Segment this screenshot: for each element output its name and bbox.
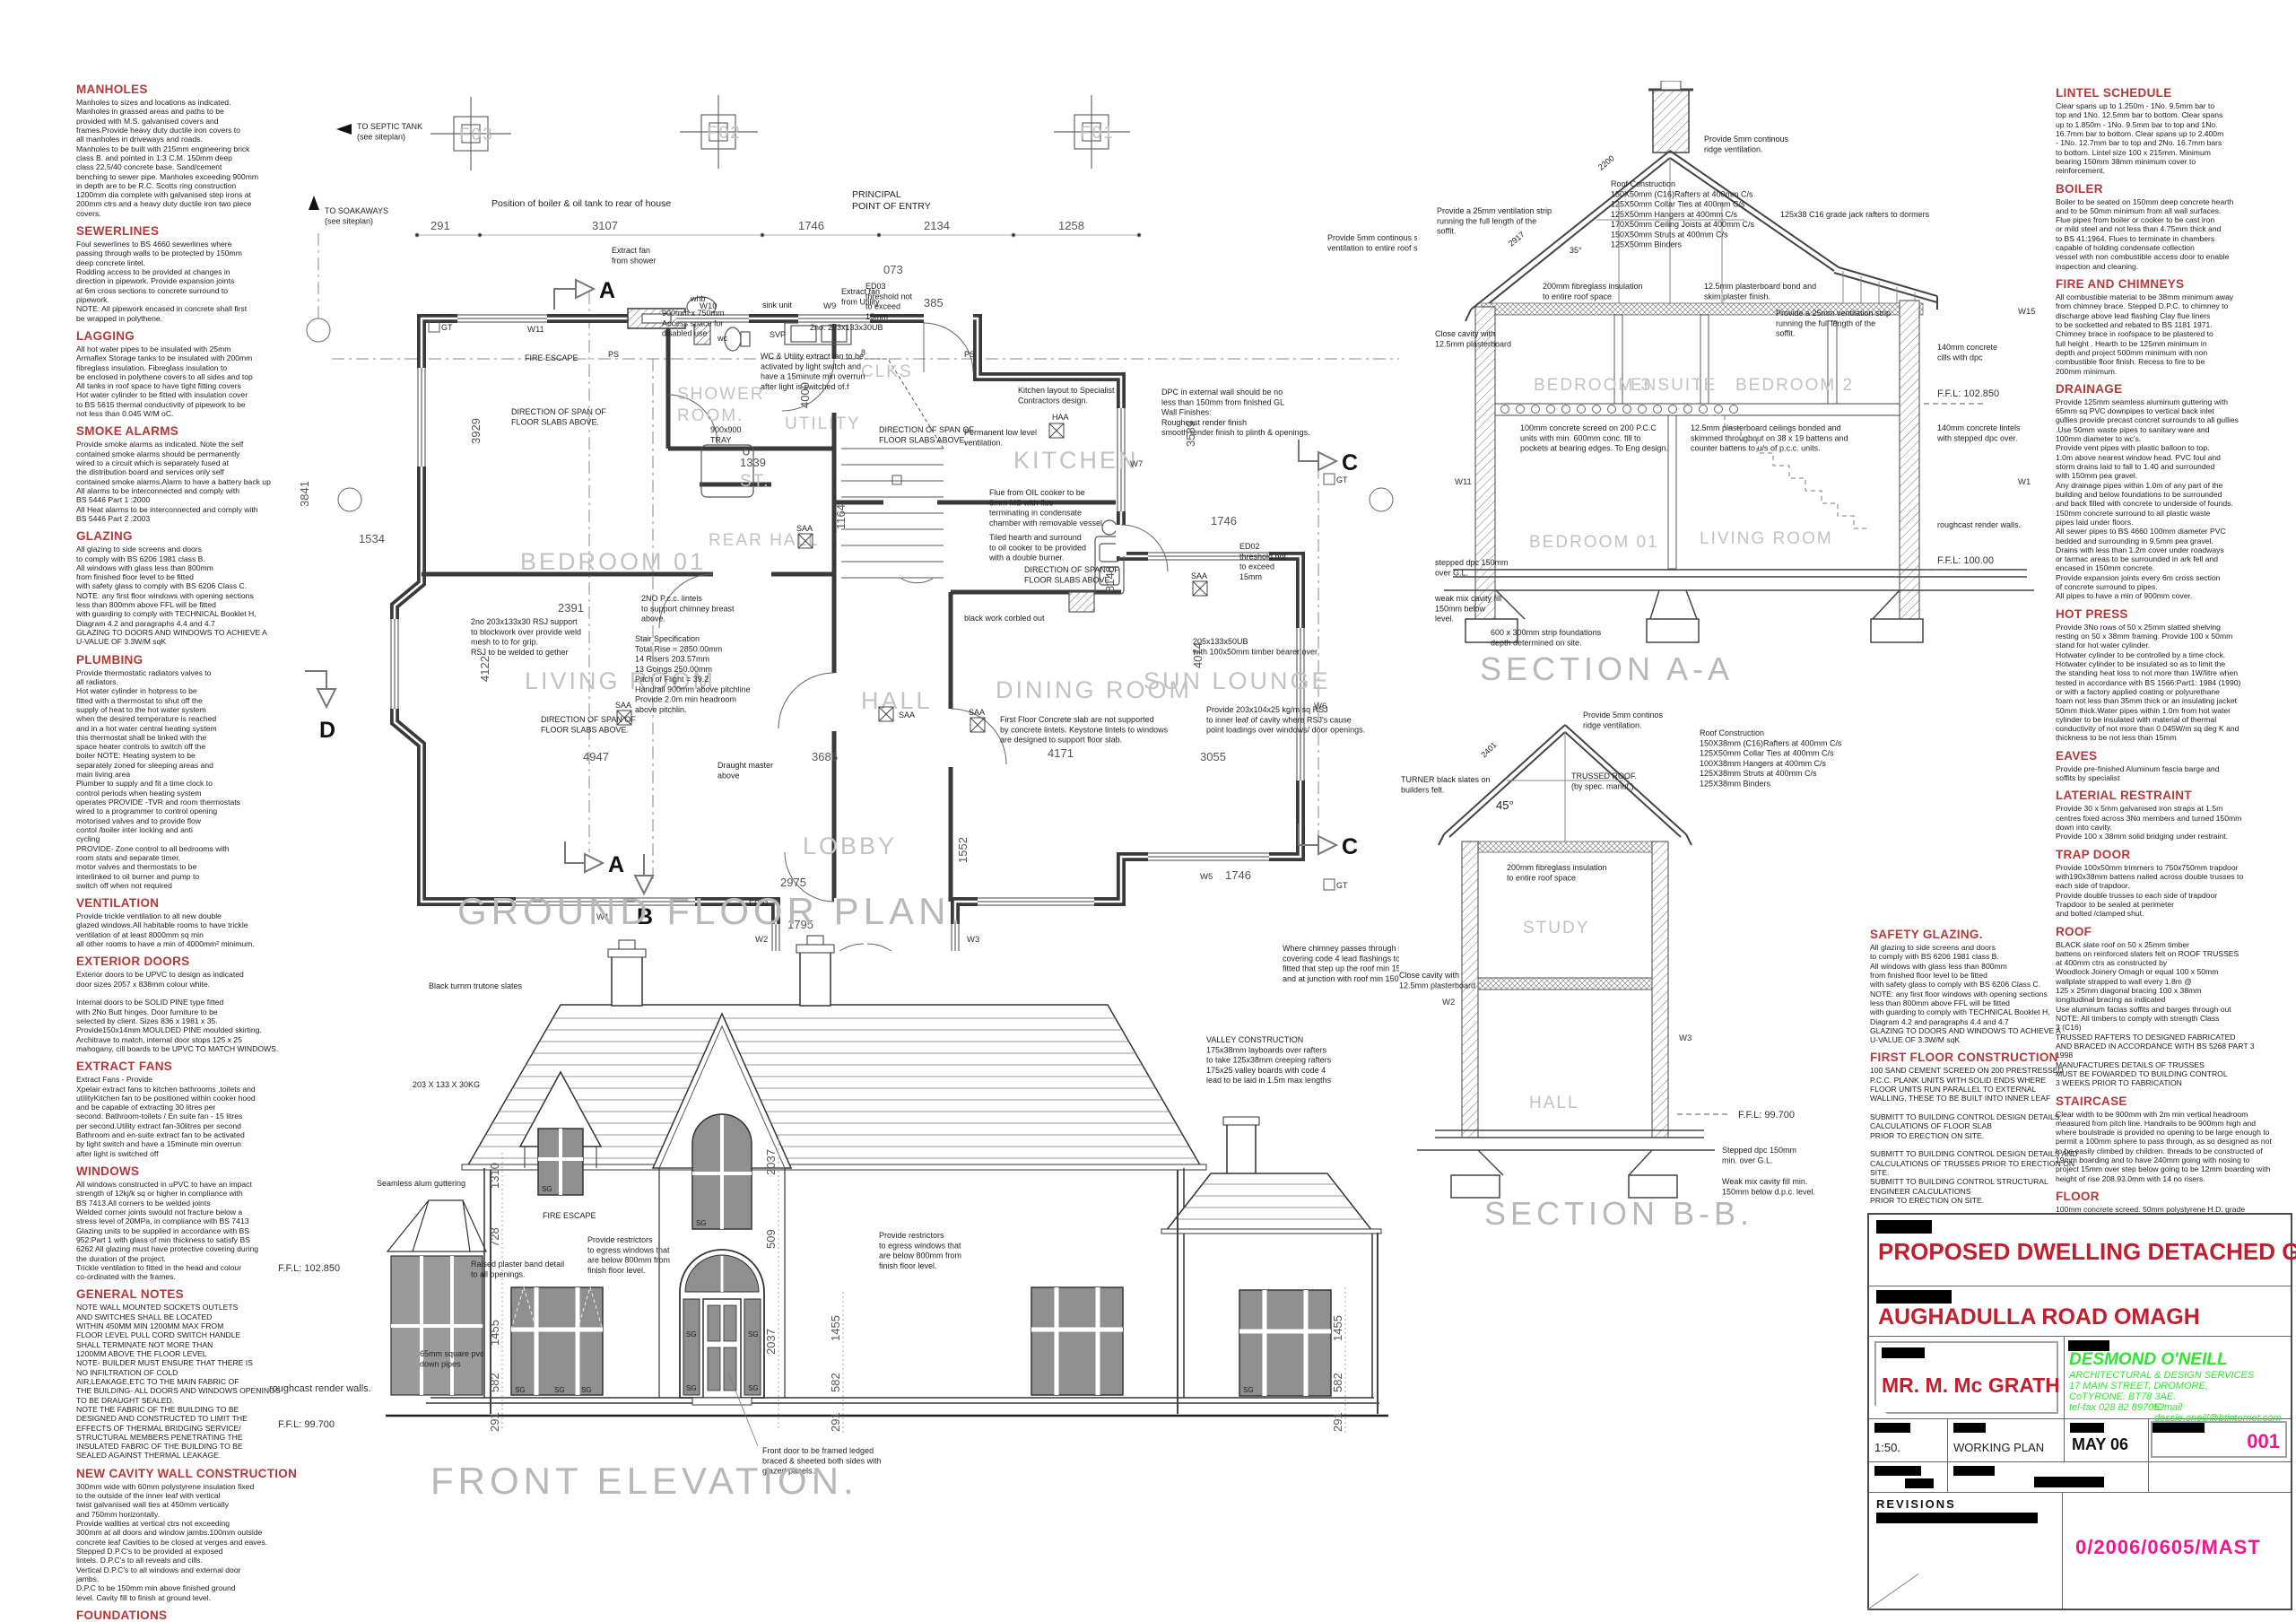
ann-ps: PS: [964, 350, 975, 359]
ann-corbel: black work corbled out: [964, 614, 1045, 623]
tb-client-agent-row: MR. M. Mc GRATH. DESMOND O'NEILL ARCHITE…: [1869, 1337, 2291, 1419]
el-slates: Black turnm trutone slates: [429, 981, 523, 990]
svg-text:GT: GT: [1336, 475, 1348, 484]
ground-floor-plan: F03 F02 F01 TO SEPTIC TANK(see siteplan)…: [296, 90, 1417, 951]
dim-3929: 3929: [469, 418, 483, 444]
sa-label-ensuite: ENSUITE: [1631, 376, 1717, 395]
notes-body: Boiler to be seated on 150mm deep concre…: [2056, 197, 2296, 272]
wtag-w7: W7: [1130, 459, 1143, 469]
notes-section: EXTRACT FANSExtract Fans - Provide Xpela…: [76, 1060, 338, 1158]
notes-heading: TRAP DOOR: [2056, 848, 2296, 861]
wtag-w5: W5: [1200, 872, 1213, 882]
svg-text:728: 728: [488, 1227, 501, 1247]
wing-roof: [1166, 1173, 1372, 1231]
title-block: PROPOSED DWELLING DETACHED GARAGE & STOR…: [1867, 1213, 2292, 1610]
drawing-sheet: MANHOLESManholes to sizes and locations …: [0, 0, 2296, 1622]
svg-text:1310: 1310: [488, 1163, 501, 1189]
ann-sink: sink unit: [762, 301, 793, 310]
chimney-symbols: [430, 95, 1130, 170]
elevation-roughcast: roughcast render walls.: [269, 1383, 371, 1394]
dim: 2134: [924, 219, 950, 232]
notes-heading: LATERIAL RESTRAINT: [2056, 789, 2296, 802]
wtag-w6: W6: [1314, 702, 1326, 711]
sb-trussed: TRUSSED ROOF.(by spec. manuf.): [1571, 772, 1637, 790]
ground-slab: [1444, 570, 2034, 619]
tb-drawn-row: [1869, 1462, 2291, 1493]
ann-rsj: 2no 203x133x30 RSJ supportto blockwork o…: [471, 617, 581, 657]
dim: 3107: [592, 219, 618, 232]
ann-access-space: 900mm x 750mmAccess space fordisabled us…: [662, 309, 725, 338]
notes-body: Provide 30 x 5mm galvanised iron straps …: [2056, 804, 2296, 841]
ann-extract-shower: Extract fanfrom shower: [612, 246, 657, 265]
svg-text:6: 6: [832, 493, 837, 502]
notes-heading: HOT PRESS: [2056, 607, 2296, 621]
grid-label-f03: F03: [459, 126, 494, 144]
svg-text:D: D: [319, 718, 335, 743]
notes-body: Provide pre-finished Aluminum fascia bar…: [2056, 764, 2296, 783]
sa-stepped-dpc: stepped dpc 150mmover G.L.: [1435, 558, 1509, 577]
notes-heading: FIRE AND CHIMNEYS: [2056, 277, 2296, 291]
section-a-a: BEDROOM 3 ENSUITE BEDROOM 2 BEDROOM 01 L…: [1435, 81, 2063, 709]
svg-text:SAA: SAA: [1191, 571, 1207, 580]
drawn-row-spare: [2149, 1462, 2291, 1492]
redacted-drawnby-value: [1905, 1478, 1934, 1488]
revisions-label: REVISIONS: [1876, 1497, 1956, 1511]
dim-1164: 1164: [834, 504, 848, 529]
dim-4947: 4947: [583, 750, 609, 763]
sb-turner: TURNER black slates onbuilders felt.: [1401, 775, 1491, 794]
checked-cell: [1948, 1462, 2149, 1492]
wing-fascia: [1161, 1229, 1381, 1234]
svg-text:C: C: [1342, 834, 1358, 859]
svg-text:SAA: SAA: [615, 701, 631, 710]
redacted-revision-entry: [1876, 1513, 2038, 1523]
redacted-date-label: [2070, 1423, 2104, 1433]
notes-section: FIRE AND CHIMNEYSAll combustible materia…: [2056, 277, 2296, 376]
planning-reference: 0/2006/0605/MAST: [2075, 1536, 2261, 1559]
ann-svp: SVP: [770, 330, 786, 339]
redacted-title-label: [1953, 1423, 1986, 1433]
redacted-checked-value: [2034, 1477, 2104, 1487]
section-b-b: STUDY HALL Provide 5mm continosridge ven…: [1399, 709, 2009, 1265]
sb-w2: W2: [1442, 998, 1455, 1007]
dim: 1746: [798, 219, 824, 232]
sa-label-living: LIVING ROOM: [1700, 529, 1833, 548]
notes-section: BOILERBoiler to be seated on 150mm deep …: [2056, 182, 2296, 272]
drawing-title-value: WORKING PLAN: [1953, 1441, 2044, 1454]
ann-principal-entry: PRINCIPALPOINT OF ENTRY: [852, 189, 931, 212]
dim-1339: 1339: [740, 456, 766, 469]
svg-text:582: 582: [829, 1373, 842, 1392]
sb-w3: W3: [1679, 1033, 1692, 1043]
tb-scale-row: 1:50. WORKING PLAN MAY 06 001: [1869, 1419, 2291, 1462]
svg-text:GT: GT: [441, 323, 453, 332]
svg-text:509: 509: [764, 1229, 778, 1249]
ann-vent-strip: Provide 5mm continous stripventilation t…: [1327, 233, 1417, 252]
redacted-drawnby-label: [1874, 1466, 1921, 1476]
notes-heading: EXTERIOR DOORS: [76, 955, 338, 968]
svg-text:SG: SG: [686, 1330, 697, 1339]
ann-fire-escape: FIRE ESCAPE: [525, 353, 578, 362]
corner-line: [1866, 1574, 1918, 1610]
dim-1552: 1552: [956, 837, 970, 863]
sheet-cell: 001: [2149, 1419, 2291, 1461]
sb-label-study: STUDY: [1523, 919, 1589, 937]
sa-ffl-ground: F.F.L: 100.00: [1937, 555, 1994, 566]
redacted-project-label: [1876, 1220, 1932, 1234]
notes-body: Provide 125mm seamless aluminum gutterin…: [2056, 397, 2296, 601]
sa-roughcast: roughcast render walls.: [1937, 520, 2021, 529]
soakaway-note: TO SOAKAWAYS(see siteplan): [325, 206, 388, 225]
wall-left: [1475, 307, 1495, 621]
septic-arrow-icon: [336, 124, 352, 135]
room-label-bedroom01: BEDROOM 01: [520, 548, 706, 575]
ann-wc: wc: [717, 334, 727, 343]
svg-text:582: 582: [1331, 1373, 1344, 1392]
notes-body: Provide 100x50mm trimmers to 750x750mm t…: [2056, 863, 2296, 919]
wtag-w9: W9: [823, 301, 836, 311]
notes-body: NOTE WALL MOUNTED SOCKETS OUTLETS AND SW…: [76, 1303, 338, 1460]
client-box: MR. M. Mc GRATH.: [1874, 1341, 2058, 1414]
section-a-title: SECTION A-A: [1480, 650, 1734, 687]
notes-section: TRAP DOORProvide 100x50mm trimmers to 75…: [2056, 848, 2296, 919]
agent-line3: CoTYRONE. BT78 3AE.: [2069, 1391, 2176, 1402]
sg-markers: SG SG SG SG SG SG SG SG SG SG: [515, 1185, 1254, 1394]
el-restrictors-2: Provide restrictorsto egress windows tha…: [879, 1231, 961, 1270]
plan-title: GROUND FLOOR PLAN.: [457, 890, 965, 932]
notes-body: Clear spans up to 1.250m - 1No. 9.5mm ba…: [2056, 101, 2296, 176]
notes-section: HOT PRESSProvide 3No rows of 50 x 25mm s…: [2056, 607, 2296, 743]
dim-3055: 3055: [1200, 750, 1226, 763]
sa-w15: W15: [2018, 307, 2036, 317]
ann-ps: PS: [608, 350, 619, 359]
el-gutter: Seamless alum guttering: [377, 1179, 465, 1188]
dim: 291: [430, 219, 450, 232]
dim-2391: 2391: [558, 601, 584, 615]
grid-label-f02: F02: [707, 124, 742, 143]
sa-ffl-first: F.F.L: 102.850: [1937, 388, 1999, 399]
stairs: [841, 359, 944, 583]
sa-lintels: 140mm concrete lintelswith stepped dpc o…: [1936, 423, 2021, 442]
dim-1534: 1534: [359, 532, 385, 545]
date-cell: MAY 06: [2065, 1419, 2149, 1461]
notes-body: Exterior doors to be UPVC to design as i…: [76, 970, 338, 1053]
sb-insul-note: 200mm fibreglass insulationto entire roo…: [1507, 863, 1607, 882]
sb-45deg: 45°: [1496, 798, 1514, 812]
room-label-clks: CLKS: [861, 362, 913, 381]
front-elevation: SG SG SG SG SG SG SG SG SG SG Black turn…: [377, 933, 1399, 1525]
ann-ed02: ED02threshold notto exceed15mm: [1239, 542, 1287, 581]
notes-heading: EXTRACT FANS: [76, 1060, 338, 1073]
scale-cell: 1:50.: [1869, 1419, 1948, 1461]
sheet-number: 001: [2247, 1430, 2280, 1453]
dim-4171: 4171: [1048, 746, 1074, 760]
elevation-ffl-first: F.F.L: 102.850: [278, 1263, 340, 1274]
svg-text:GT: GT: [1336, 881, 1348, 890]
wtag-w10: W10: [700, 301, 717, 311]
sheet-box: 001: [2151, 1421, 2287, 1458]
agent-line4: tel-fax 028 82 897052: [2069, 1402, 2164, 1413]
sa-ceilings: 12.5mm plasterboard ceilings bonded ands…: [1691, 423, 1848, 453]
el-chimney-lead: Where chimney passes through roofcoverin…: [1283, 944, 1399, 983]
sa-plasterboard: 12.5mm plasterboard bond andskim plaster…: [1704, 282, 1816, 301]
sa-screed: 100mm concrete screed on 200 P.C.Cunits …: [1520, 423, 1668, 453]
sb-2401: 2401: [1479, 740, 1498, 759]
sa-foundations-note: 600 x 300mm strip foundationsdepth deter…: [1491, 628, 1602, 647]
ann-perm-vent: Permanent low levelventilation.: [964, 428, 1037, 447]
svg-text:SG: SG: [554, 1386, 565, 1394]
sa-insulation: 200mm fibreglass insulationto entire roo…: [1543, 282, 1643, 301]
redacted-client-label: [1882, 1347, 1925, 1358]
sb-insulation: [1464, 842, 1666, 852]
svg-text:1455: 1455: [488, 1320, 501, 1346]
notes-section: GENERAL NOTESNOTE WALL MOUNTED SOCKETS O…: [76, 1287, 338, 1460]
notes-heading: FOUNDATIONS: [76, 1609, 338, 1622]
svg-text:SAA: SAA: [796, 524, 813, 533]
date-value: MAY 06: [2072, 1435, 2128, 1454]
setting-out-circle: [338, 488, 361, 511]
redacted-scale-label: [1874, 1423, 1910, 1433]
sb-label-hall: HALL: [1529, 1094, 1579, 1112]
svg-text:C: C: [1342, 450, 1358, 475]
dim-4000: 4000: [798, 382, 812, 408]
dim-385: 385: [924, 296, 944, 310]
sa-2917: 2917: [1507, 230, 1526, 248]
notes-section: LATERIAL RESTRAINTProvide 30 x 5mm galva…: [2056, 789, 2296, 841]
ann-first-floor-slab: First Floor Concrete slab are not suppor…: [1000, 715, 1169, 745]
svg-text:2037: 2037: [764, 1149, 778, 1175]
dim-4074: 4074: [1191, 642, 1205, 668]
room-label-sun-lounge: SUN LOUNGE: [1144, 667, 1331, 694]
notes-section: FOUNDATIONS600 x 250mm foundations to ne…: [76, 1609, 338, 1622]
svg-text:3: 3: [832, 542, 837, 551]
sb-weak-mix: Weak mix cavity fill min.150mm below d.p…: [1722, 1177, 1815, 1196]
el-restrictors-1: Provide restrictorsto egress windows tha…: [587, 1235, 670, 1275]
svg-text:A: A: [599, 278, 615, 303]
notes-section: EXTERIOR DOORSExterior doors to be UPVC …: [76, 955, 338, 1053]
wtag-w11: W11: [527, 325, 544, 335]
sa-vent-left: Provide a 25mm ventilation striprunning …: [1437, 206, 1552, 236]
scale-value: 1:50.: [1874, 1441, 1900, 1454]
dim-4122: 4122: [478, 656, 491, 682]
notes-heading: DRAINAGE: [2056, 382, 2296, 396]
notes-heading: WINDOWS: [76, 1164, 338, 1178]
notes-section: DRAINAGEProvide 125mm seamless aluminum …: [2056, 382, 2296, 601]
svg-text:1455: 1455: [1331, 1315, 1344, 1341]
sb-ffl: F.F.L: 99.700: [1738, 1110, 1795, 1121]
sb-ground: [1417, 1130, 1715, 1175]
svg-text:2: 2: [832, 558, 837, 567]
notes-body: All combustible material to be 38mm mini…: [2056, 292, 2296, 376]
svg-text:SG: SG: [748, 1330, 759, 1339]
soakaway-arrow-icon: [309, 196, 319, 210]
tb-location-row: AUGHADULLA ROAD OMAGH: [1869, 1286, 2291, 1337]
location-title: AUGHADULLA ROAD OMAGH: [1878, 1304, 2200, 1330]
revisions-divider: [2062, 1493, 2063, 1609]
room-label-utility: UTILITY: [785, 414, 861, 433]
dim-8148: 8148: [1103, 566, 1117, 592]
sa-close-cavity: Close cavity with12.5mm plasterboard: [1435, 329, 1511, 348]
ann-hearth: Tiled hearth and surroundto oil cooker t…: [988, 533, 1086, 562]
dim: 1258: [1058, 219, 1084, 232]
sa-ridge-note: Provide 5mm continousridge ventilation.: [1704, 135, 1789, 153]
svg-text:291: 291: [1331, 1412, 1344, 1432]
elevation-ffl-ground: F.F.L: 99.700: [278, 1419, 335, 1430]
sb-wall-right: [1652, 842, 1668, 1138]
svg-text:A: A: [608, 852, 624, 877]
sa-35deg: 35°: [1570, 246, 1582, 255]
room-label-lobby: LOBBY: [803, 833, 897, 859]
ann-flue: Flue from OIL cooker to be6mm MS with fl…: [989, 488, 1102, 528]
setting-out-circle: [1370, 488, 1393, 511]
notes-section: EAVESProvide pre-finished Aluminum fasci…: [2056, 749, 2296, 783]
agent-line2: 17 MAIN STREET, DROMORE,: [2069, 1381, 2208, 1391]
room-label-kitchen: KITCHEN: [1013, 447, 1139, 474]
chimney: [1653, 90, 1689, 153]
redacted-location-label: [1876, 1290, 1952, 1304]
client-cell: MR. M. Mc GRATH.: [1869, 1337, 2065, 1418]
room-label-shower: SHOWERROOM.: [677, 385, 765, 425]
ann-draught: Draught masterabove: [717, 761, 773, 780]
sb-stepped-dpc: Stepped dpc 150mmmin. over G.L.: [1722, 1146, 1796, 1164]
dim-073: 073: [883, 263, 903, 276]
ann-span-bed: DIRECTION OF SPAN OFFLOOR SLABS ABOVE.: [511, 407, 606, 426]
ann-rsj2: Provide 203x104x25 kg/m sq RSJto inner l…: [1206, 705, 1365, 735]
svg-text:1: 1: [832, 574, 837, 583]
sa-label-bed1: BEDROOM 01: [1529, 533, 1659, 552]
agent-cell: DESMOND O'NEILL ARCHITECTURAL & DESIGN S…: [2065, 1337, 2291, 1418]
interior-walls: [422, 318, 1121, 902]
svg-text:291: 291: [488, 1412, 501, 1432]
svg-text:291: 291: [829, 1412, 842, 1432]
notes-heading: LINTEL SCHEDULE: [2056, 86, 2296, 100]
notes-heading: GENERAL NOTES: [76, 1287, 338, 1301]
notes-heading: BOILER: [2056, 182, 2296, 196]
sb-ridge: Provide 5mm continosridge ventilation.: [1583, 711, 1664, 729]
svg-text:SG: SG: [696, 1219, 707, 1227]
svg-text:SG: SG: [748, 1384, 759, 1392]
svg-text:7: 7: [832, 477, 837, 486]
sa-2200: 2200: [1596, 153, 1616, 171]
notes-heading: EAVES: [2056, 749, 2296, 763]
dim-1746b: 1746: [1211, 514, 1237, 528]
sb-roof-construction: Roof Construction150X38mm (C16)Rafters a…: [1700, 728, 1842, 788]
top-dim-chain: [415, 233, 1141, 237]
sa-jack-rafters: 125x38 C16 grade jack rafters to dormers: [1780, 210, 1930, 219]
dim-3686: 3686: [812, 750, 838, 763]
notes-heading: NEW CAVITY WALL CONSTRUCTION: [76, 1467, 338, 1480]
svg-text:SG: SG: [1243, 1386, 1254, 1394]
notes-section: LINTEL SCHEDULEClear spans up to 1.250m …: [2056, 86, 2296, 176]
room-label-st: ST.: [740, 472, 770, 491]
sa-label-bed2: BEDROOM 2: [1735, 376, 1854, 395]
ann-kitchen-layout: Kitchen layout to SpecialistContractors …: [1018, 386, 1115, 405]
el-plaster-band: Raised plaster band detailto all opening…: [471, 1260, 564, 1278]
agent-name: DESMOND O'NEILL: [2069, 1350, 2228, 1370]
elevation-title: FRONT ELEVATION.: [430, 1460, 858, 1502]
boiler-position-note: Position of boiler & oil tank to rear of…: [491, 198, 671, 209]
grid-label-f01: F01: [1080, 124, 1115, 143]
ann-haa: HAA: [1052, 413, 1069, 422]
redacted-checked-label: [1953, 1466, 1995, 1476]
dim-3841: 3841: [298, 481, 311, 507]
section-b-title: SECTION B-B.: [1484, 1195, 1753, 1232]
drawn-by-cell: [1869, 1462, 1948, 1492]
ann-ub: 2no. 203x133x30UB: [810, 323, 883, 332]
el-fire-escape: FIRE ESCAPE: [543, 1211, 596, 1220]
sa-w1: W1: [2018, 477, 2031, 487]
dim-1746c: 1746: [1225, 868, 1251, 882]
svg-text:SG: SG: [542, 1185, 552, 1193]
tb-project-row: PROPOSED DWELLING DETACHED GARAGE & STOR…: [1869, 1215, 2291, 1286]
agent-line1: ARCHITECTURAL & DESIGN SERVICES: [2069, 1370, 2254, 1381]
el-beam: 203 X 133 X 30KG: [413, 1080, 480, 1089]
svg-text:SAA: SAA: [899, 711, 915, 719]
svg-text:SAA: SAA: [969, 708, 985, 717]
sa-roof-construction: Roof Construction150X50mm (C16)Rafters a…: [1611, 179, 1755, 249]
drawing-title-cell: WORKING PLAN: [1948, 1419, 2065, 1461]
room-label-hall: HALL: [861, 687, 933, 714]
first-floor-slab: [1495, 404, 1900, 415]
dim-3589: 3589: [1184, 421, 1197, 447]
dim-2975: 2975: [780, 876, 806, 889]
ann-stair-spec: Stair SpecificationTotal Rise = 2850.00m…: [635, 634, 751, 714]
ann-pcc-lintels: 2NO P.c.c. lintelsto support chimney bre…: [641, 594, 735, 624]
septic-note: TO SEPTIC TANK(see siteplan): [357, 122, 422, 141]
ann-tray: 900x900TRAY: [710, 425, 742, 444]
el-valley: VALLEY CONSTRUCTION175x38mm layboards ov…: [1206, 1035, 1332, 1085]
notes-section: NEW CAVITY WALL CONSTRUCTION300mm wide w…: [76, 1467, 338, 1602]
tb-revisions-row: REVISIONS 0/2006/0605/MAST: [1869, 1493, 2291, 1609]
svg-text:1455: 1455: [829, 1315, 842, 1341]
svg-text:582: 582: [488, 1373, 501, 1392]
notes-body: Provide 3No rows of 50 x 25mm slatted sh…: [2056, 623, 2296, 743]
ann-span-utility: DIRECTION OF SPAN OFFLOOR SLABS ABOVE.: [879, 425, 974, 444]
project-title: PROPOSED DWELLING DETACHED GARAGE & STOR…: [1878, 1238, 2296, 1266]
ann-wc-extract-note: WC & Utility extract fan to beactivated …: [761, 352, 865, 391]
notes-body: Extract Fans - Provide Xpelair extract f…: [76, 1075, 338, 1158]
notes-body: 300mm wide with 60mm polystyrene insulat…: [76, 1482, 338, 1602]
sb-study-floor: [1478, 978, 1652, 990]
wall-right: [1900, 301, 1919, 621]
partition-lower: [1668, 414, 1676, 569]
svg-text:SG: SG: [581, 1386, 592, 1394]
svg-text:SG: SG: [686, 1384, 697, 1392]
sa-w11: W11: [1455, 477, 1472, 487]
gully-circle: [307, 318, 330, 342]
svg-text:SG: SG: [515, 1386, 526, 1394]
client-name: MR. M. Mc GRATH.: [1882, 1373, 2066, 1398]
sa-cills: 140mm concretecills with dpc: [1937, 343, 1997, 362]
svg-text:2037: 2037: [764, 1329, 778, 1355]
